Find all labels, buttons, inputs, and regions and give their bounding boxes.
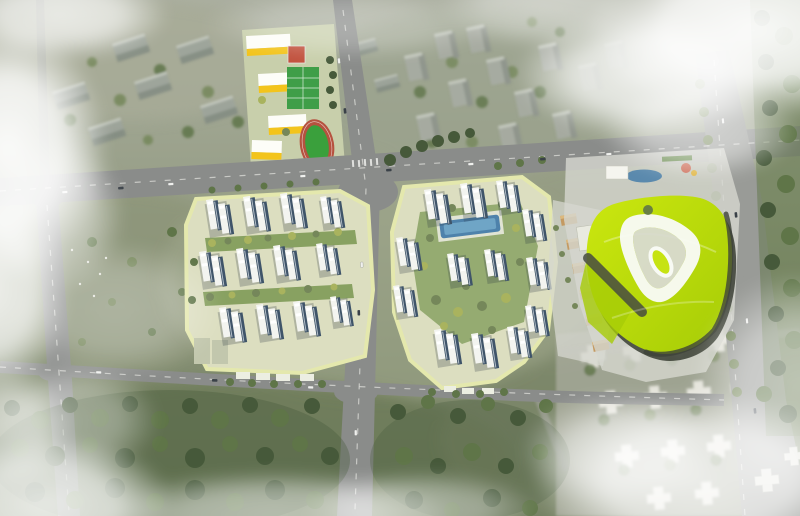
- car: [357, 310, 360, 316]
- cloud: [600, 80, 800, 180]
- car: [212, 379, 218, 382]
- car: [540, 158, 546, 161]
- car: [354, 430, 357, 436]
- car: [468, 163, 474, 166]
- car: [360, 262, 363, 268]
- mist: [520, 390, 720, 510]
- sports-courts: [287, 67, 319, 109]
- car: [386, 169, 392, 172]
- mist: [5, 240, 225, 380]
- aerial-masterplan-rendering: [0, 0, 800, 516]
- car: [300, 175, 306, 178]
- car: [168, 183, 174, 186]
- car: [606, 153, 612, 156]
- school-building: [251, 140, 282, 160]
- plaza-canopy: [606, 166, 628, 179]
- car: [308, 386, 314, 389]
